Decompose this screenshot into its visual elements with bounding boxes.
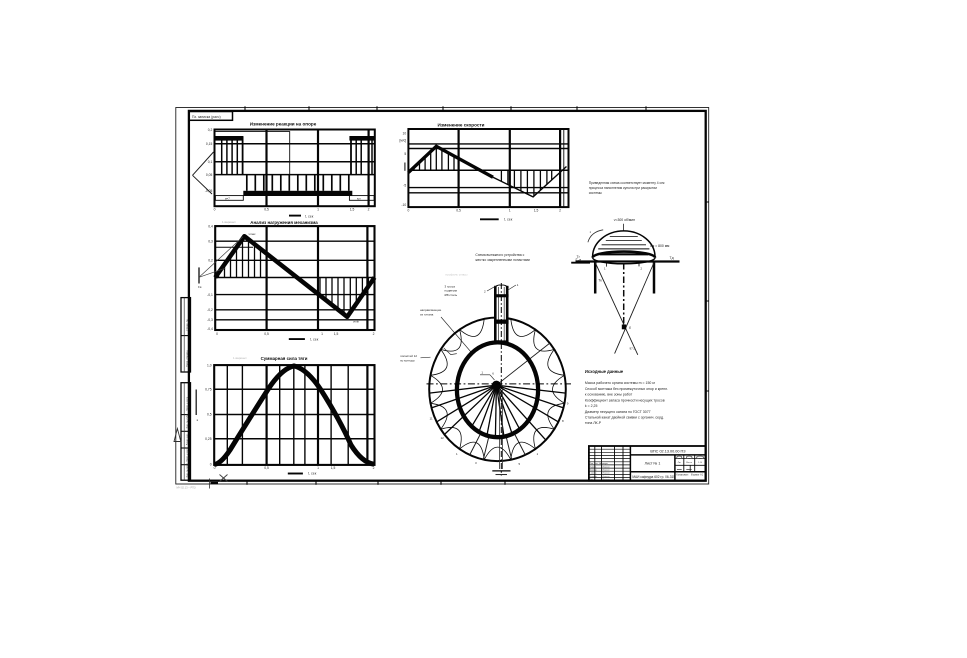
svg-text:Суммарная сила тяги: Суммарная сила тяги — [261, 356, 308, 361]
svg-text:Формат А1: Формат А1 — [691, 473, 704, 476]
svg-text:0: 0 — [216, 332, 218, 336]
svg-text:1: 1 — [317, 466, 319, 470]
svg-text:vmax: vmax — [249, 232, 256, 236]
svg-text:типа ЛК-Р: типа ЛК-Р — [585, 421, 602, 425]
svg-text:Изменение скорости: Изменение скорости — [438, 122, 485, 127]
svg-text:0,5: 0,5 — [264, 332, 269, 336]
svg-text:из титана: из титана — [420, 312, 434, 316]
svg-text:Копировал: Копировал — [676, 473, 689, 476]
svg-text:профиль спицы: профиль спицы — [446, 272, 468, 276]
svg-text:б: б — [629, 326, 631, 330]
svg-text:0: 0 — [407, 209, 409, 213]
svg-text:Изм Лист № докум.: Изм Лист № докум. — [589, 462, 608, 465]
svg-text:0,05: 0,05 — [206, 173, 213, 177]
svg-text:Взам. инв.: Взам. инв. — [186, 433, 189, 445]
svg-text:Инв. № подл.: Инв. № подл. — [186, 462, 189, 477]
svg-text:Стальной канат двойной свивки: Стальной канат двойной свивки с органич.… — [585, 415, 664, 419]
svg-text:t, сек: t, сек — [308, 472, 317, 476]
svg-text:Пз. записка (расч): Пз. записка (расч) — [192, 115, 221, 119]
svg-text:Иванов: Иванов — [602, 473, 610, 475]
svg-text:Н.контр.: Н.контр. — [589, 476, 597, 478]
svg-text:Иванов: Иванов — [602, 466, 610, 468]
svg-text:-5: -5 — [403, 184, 406, 188]
svg-text:Исходные данные: Исходные данные — [585, 369, 624, 374]
svg-text:а=7: а=7 — [225, 196, 230, 200]
svg-text:Лит: Лит — [678, 462, 681, 464]
svg-text:Подп. и дата: Подп. и дата — [186, 396, 189, 411]
svg-text:k = 2,25: k = 2,25 — [585, 404, 598, 408]
svg-text:0,15: 0,15 — [206, 142, 213, 146]
svg-text:97,5: 97,5 — [630, 347, 636, 351]
svg-text:юп: юп — [357, 196, 361, 200]
svg-text:10: 10 — [403, 132, 407, 136]
svg-text:5: 5 — [404, 152, 406, 156]
svg-text:0: 0 — [214, 466, 216, 470]
svg-text:0,5: 0,5 — [264, 466, 269, 470]
svg-text:Tд: Tд — [670, 256, 674, 260]
svg-text:системы: системы — [589, 191, 603, 195]
svg-text:Приведенная схема соответствуе: Приведенная схема соответствует моменту … — [589, 181, 665, 185]
svg-text:11: 11 — [430, 417, 433, 421]
svg-text:Σв: Σв — [198, 285, 202, 289]
svg-text:Масса рабочего органа системы: Масса рабочего органа системы m = 150 кг — [585, 381, 656, 385]
svg-text:0,5: 0,5 — [264, 208, 269, 212]
svg-text:МАИ кафедра 602 гр. 06-315: МАИ кафедра 602 гр. 06-315 — [632, 475, 675, 479]
svg-text:Подп. и дата: Подп. и дата — [186, 447, 189, 462]
svg-text:0,1: 0,1 — [208, 160, 213, 164]
svg-text:Справ. №: Справ. № — [185, 319, 189, 331]
svg-text:к основанию, вне зоны работ: к основанию, вне зоны работ — [585, 393, 633, 397]
svg-text:жестко закрепленными лопастями: жестко закрепленными лопастями — [475, 258, 530, 262]
svg-text:Утв.: Утв. — [589, 479, 593, 481]
svg-text:0: 0 — [214, 208, 216, 212]
svg-text:1 вариант: 1 вариант — [222, 220, 236, 224]
svg-text:Dк = 800 мм: Dк = 800 мм — [650, 244, 670, 248]
svg-text:Диаметр несущего каната по ГОС: Диаметр несущего каната по ГОСТ 3077 — [585, 410, 651, 414]
svg-text:t, сек: t, сек — [310, 337, 319, 341]
svg-text:подвески: подвески — [445, 289, 458, 293]
svg-text:0,2: 0,2 — [208, 258, 213, 262]
svg-text:Лист № 1: Лист № 1 — [645, 462, 661, 466]
svg-text:2: 2 — [559, 209, 561, 213]
svg-text:Коэффициент запаса прочности н: Коэффициент запаса прочности несущих тро… — [585, 399, 665, 403]
svg-text:Т.контр.: Т.контр. — [589, 473, 597, 475]
svg-text:2: 2 — [373, 332, 375, 336]
svg-text:1,5: 1,5 — [331, 466, 336, 470]
svg-text:Инв. № дубл.: Инв. № дубл. — [186, 413, 189, 428]
svg-text:0,5: 0,5 — [207, 413, 212, 417]
svg-text:МЧ 02.13 – РПЗ: МЧ 02.13 – РПЗ — [177, 485, 197, 489]
svg-text:-0,1: -0,1 — [207, 293, 213, 297]
svg-text:ν=300 об/мин: ν=300 об/мин — [614, 218, 635, 222]
svg-text:1: 1 — [509, 209, 511, 213]
svg-text:лопастей 12: лопастей 12 — [400, 354, 417, 358]
svg-text:0,5: 0,5 — [456, 209, 461, 213]
svg-text:ВПС 02.13.00.00 ПЗ: ВПС 02.13.00.00 ПЗ — [650, 449, 686, 453]
svg-text:0,75: 0,75 — [205, 387, 212, 391]
svg-text:Способ монтажа без промежуточн: Способ монтажа без промежуточных опор и … — [585, 387, 668, 391]
svg-text:Иванов: Иванов — [602, 470, 610, 472]
svg-text:Ø8 сталь: Ø8 сталь — [445, 293, 458, 297]
svg-text:1,5: 1,5 — [534, 209, 539, 213]
svg-text:-0,2: -0,2 — [207, 308, 213, 312]
svg-text:1 вариант: 1 вариант — [233, 356, 247, 360]
svg-text:0,25: 0,25 — [205, 437, 212, 441]
svg-text:[м/с]: [м/с] — [400, 139, 407, 143]
svg-text:2: 2 — [373, 466, 375, 470]
svg-text:0,3: 0,3 — [208, 239, 213, 243]
svg-text:Масса: Масса — [686, 462, 693, 464]
svg-text:Перв. примен.: Перв. примен. — [185, 349, 189, 367]
svg-text:Тк: Тк — [598, 278, 602, 282]
svg-text:по контуру: по контуру — [400, 358, 415, 362]
svg-text:1,5: 1,5 — [334, 332, 339, 336]
svg-text:t, сек: t, сек — [305, 214, 314, 218]
svg-text:2: 2 — [368, 208, 370, 212]
svg-text:0: 0 — [210, 463, 212, 467]
svg-text:Разраб.: Разраб. — [589, 466, 597, 468]
svg-text:1: 1 — [321, 332, 323, 336]
svg-text:Иванов: Иванов — [602, 479, 610, 481]
svg-text:0,2: 0,2 — [208, 128, 213, 132]
svg-text:Схема вытяжного устройства с: Схема вытяжного устройства с — [475, 253, 524, 257]
svg-text:vmin: vmin — [353, 319, 359, 323]
svg-text:t, сек: t, сек — [504, 218, 513, 222]
svg-text:1: 1 — [317, 208, 319, 212]
svg-text:3 троса: 3 троса — [445, 284, 456, 288]
svg-text:-0,3: -0,3 — [207, 318, 213, 322]
svg-text:Изменение реакции на опоре: Изменение реакции на опоре — [250, 122, 317, 127]
svg-text:процесса наполнения купола при: процесса наполнения купола при раскрытии — [589, 186, 657, 190]
svg-text:направляющие: направляющие — [420, 308, 442, 312]
svg-text:1,0: 1,0 — [207, 364, 212, 368]
svg-text:-10: -10 — [401, 203, 406, 207]
svg-text:Анализ нагружения механизма: Анализ нагружения механизма — [250, 220, 318, 225]
svg-text:0,4: 0,4 — [208, 224, 213, 228]
svg-text:Провер.: Провер. — [589, 470, 597, 472]
svg-text:Иванов: Иванов — [602, 476, 610, 478]
svg-text:12: 12 — [441, 436, 445, 440]
svg-text:1,5: 1,5 — [350, 208, 355, 212]
svg-text:-0,4: -0,4 — [207, 327, 213, 331]
